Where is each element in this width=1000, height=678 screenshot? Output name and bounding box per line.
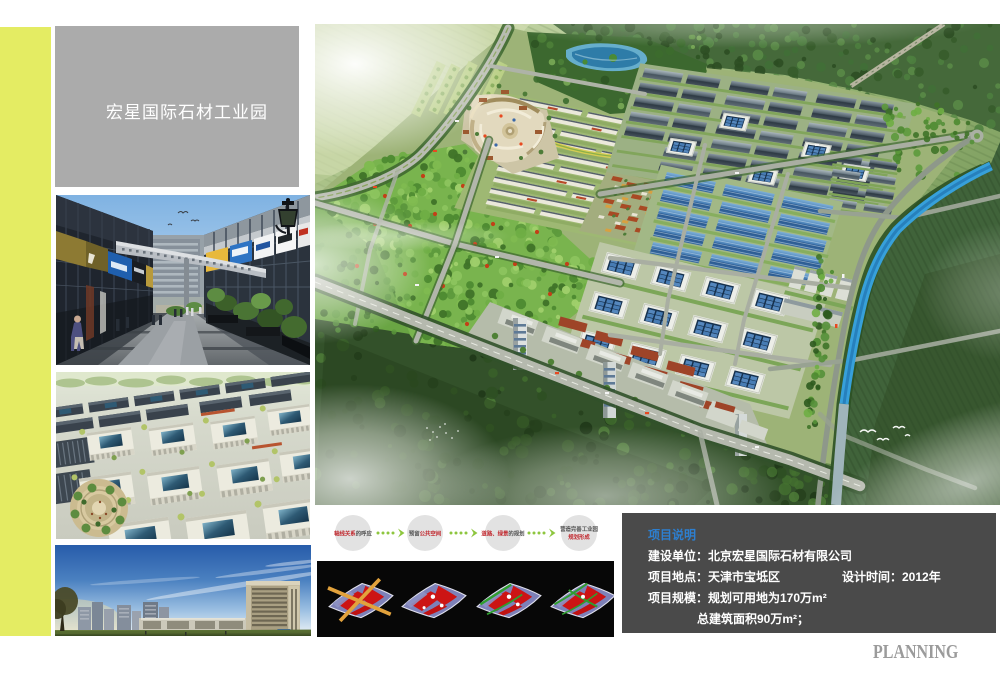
svg-text:道路、绿景的规划: 道路、绿景的规划	[481, 530, 525, 538]
svg-text:预留公共空间: 预留公共空间	[409, 530, 442, 538]
svg-text:轴线关系的呼应: 轴线关系的呼应	[334, 530, 372, 538]
svg-text:营造完善工业园: 营造完善工业园	[560, 525, 598, 533]
svg-text:规划形成: 规划形成	[568, 533, 590, 541]
